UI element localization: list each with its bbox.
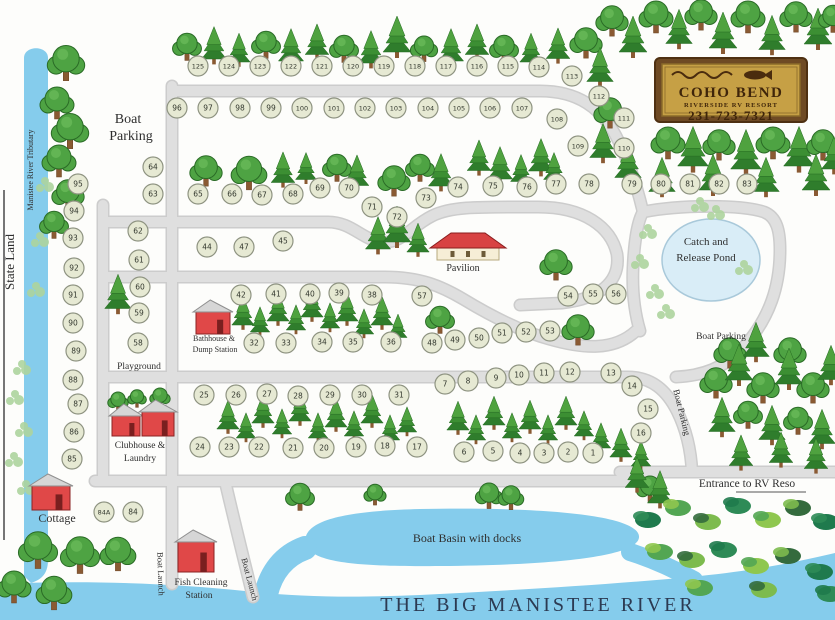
site-marker: 1	[583, 443, 603, 463]
house-wall	[112, 416, 140, 436]
site-marker: 101	[324, 98, 344, 118]
site-marker: 65	[188, 184, 208, 204]
bush-blob	[662, 304, 670, 312]
site-number: 17	[412, 443, 422, 452]
site-number: 83	[742, 180, 752, 189]
canopy-highlight	[740, 4, 750, 14]
canopy-highlight	[433, 309, 442, 318]
site-marker: 104	[418, 98, 438, 118]
site-number: 85	[67, 455, 77, 464]
site-marker: 21	[283, 438, 303, 458]
site-marker: 17	[407, 437, 427, 457]
canopy	[430, 306, 450, 326]
site-marker: 107	[512, 98, 532, 118]
site-marker: 30	[352, 385, 372, 405]
house-wall	[196, 312, 230, 334]
campground-map: 1251241231221211201191181171161151141139…	[0, 0, 835, 620]
site-marker: 48	[422, 333, 442, 353]
canopy-highlight	[259, 34, 268, 43]
site-number: 29	[325, 391, 335, 400]
house-door	[129, 423, 134, 436]
site-number: 121	[316, 63, 328, 71]
site-marker: 31	[389, 385, 409, 405]
site-number: 67	[257, 191, 267, 200]
site-number: 11	[539, 369, 549, 378]
site-number: 55	[588, 290, 598, 299]
site-number: 98	[235, 104, 245, 113]
bush-blob	[18, 360, 26, 368]
site-number: 89	[71, 347, 81, 356]
site-number: 44	[202, 243, 212, 252]
site-number: 65	[193, 190, 203, 199]
site-number: 97	[203, 104, 213, 113]
map-label-boat-parking-nw-1: Boat	[115, 112, 142, 127]
canopy-highlight	[241, 159, 252, 170]
site-number: 63	[148, 190, 158, 199]
canopy-highlight	[826, 8, 835, 16]
bush-blob	[36, 232, 44, 240]
site-number: 3	[542, 449, 547, 458]
site-number: 104	[422, 105, 434, 113]
site-marker: 79	[622, 174, 642, 194]
canopy-highlight	[180, 36, 189, 45]
site-number: 112	[593, 93, 605, 101]
site-number: 16	[636, 429, 646, 438]
canopy-highlight	[198, 159, 208, 169]
bush-top	[741, 557, 757, 567]
site-number: 27	[262, 390, 272, 399]
site-number: 50	[474, 334, 484, 343]
canopy-highlight	[755, 376, 765, 386]
canopy-highlight	[155, 390, 161, 396]
site-marker: 16	[631, 423, 651, 443]
site-marker: 42	[231, 285, 251, 305]
site-marker: 44	[197, 237, 217, 257]
site-number: 115	[502, 63, 514, 71]
canopy-highlight	[418, 38, 426, 46]
site-number: 52	[521, 328, 531, 337]
site-number: 108	[551, 116, 563, 124]
site-number: 92	[69, 264, 79, 273]
site-number: 57	[417, 292, 427, 301]
site-marker: 108	[547, 109, 567, 129]
canopy-highlight	[6, 574, 16, 584]
site-number: 78	[584, 180, 594, 189]
site-number: 120	[347, 63, 359, 71]
house-door	[162, 420, 168, 436]
bush-blob	[646, 291, 654, 299]
bush-top	[811, 513, 827, 523]
canopy-highlight	[110, 540, 121, 551]
site-number: 109	[572, 143, 584, 151]
bush-blob	[5, 459, 13, 467]
site-number: 95	[73, 180, 83, 189]
site-marker: 11	[534, 363, 554, 383]
sign-title: COHO BEND	[679, 85, 784, 101]
map-label-pond-1: Catch and	[684, 236, 729, 248]
site-marker: 103	[386, 98, 406, 118]
site-number: 125	[192, 63, 204, 71]
site-number: 73	[421, 194, 431, 203]
site-number: 99	[266, 104, 276, 113]
site-marker: 23	[219, 437, 239, 457]
canopy	[738, 401, 758, 421]
site-marker: 98	[230, 98, 250, 118]
site-number: 81	[685, 180, 695, 189]
site-marker: 73	[416, 188, 436, 208]
site-marker: 114	[529, 57, 549, 77]
house-door	[56, 494, 63, 510]
site-marker: 109	[568, 136, 588, 156]
site-marker: 87	[68, 394, 88, 414]
site-marker: 47	[234, 237, 254, 257]
site-marker: 14	[622, 376, 642, 396]
map-label-fish-cleaning-2: Station	[186, 591, 213, 601]
site-marker: 55	[583, 284, 603, 304]
site-marker: 100	[292, 98, 312, 118]
site-marker: 111	[614, 108, 634, 128]
canopy-highlight	[57, 49, 68, 60]
site-marker: 83	[737, 174, 757, 194]
bush-blob	[636, 254, 644, 262]
canopy-highlight	[46, 579, 57, 590]
site-marker: 34	[312, 332, 332, 352]
site-marker: 105	[449, 98, 469, 118]
site-number: 96	[172, 104, 182, 113]
canopy-highlight	[61, 117, 72, 128]
site-number: 111	[618, 115, 630, 123]
site-number: 87	[73, 400, 83, 409]
site-marker: 78	[579, 174, 599, 194]
site-marker: 122	[281, 56, 301, 76]
site-marker: 76	[517, 177, 537, 197]
site-marker: 15	[638, 399, 658, 419]
site-marker: 50	[469, 328, 489, 348]
site-number: 13	[606, 369, 616, 378]
site-marker: 80	[651, 174, 671, 194]
canopy-highlight	[370, 486, 377, 493]
bush-top	[645, 543, 661, 553]
site-marker: 49	[445, 330, 465, 350]
site-marker: 74	[448, 177, 468, 197]
site-marker: 88	[63, 370, 83, 390]
site-marker: 58	[128, 333, 148, 353]
map-canvas: 1251241231221211201191181171161151141139…	[0, 0, 835, 620]
site-number: 26	[231, 391, 241, 400]
canopy	[290, 483, 310, 503]
map-label-boat-launch-1: Boat Launch	[155, 552, 167, 597]
site-number: 113	[566, 73, 578, 81]
bush-top	[677, 551, 693, 561]
site-number: 51	[497, 329, 507, 338]
site-marker: 51	[492, 323, 512, 343]
bush-top	[663, 499, 679, 509]
bush-blob	[10, 452, 18, 460]
site-marker: 26	[226, 385, 246, 405]
site-number: 77	[551, 180, 561, 189]
canopy-highlight	[71, 540, 83, 552]
site-number: 30	[357, 391, 367, 400]
site-number: 47	[239, 243, 249, 252]
canopy-highlight	[815, 133, 825, 143]
site-number: 10	[514, 371, 524, 380]
site-number: 72	[392, 213, 402, 222]
site-number: 84	[128, 508, 138, 517]
canopy	[788, 407, 808, 427]
site-number: 40	[305, 290, 315, 299]
site-marker: 13	[601, 363, 621, 383]
site-number: 79	[627, 180, 637, 189]
site-marker: 119	[374, 56, 394, 76]
site-marker: 63	[143, 184, 163, 204]
site-number: 59	[134, 309, 144, 318]
canopy-highlight	[51, 148, 61, 158]
site-marker: 118	[405, 56, 425, 76]
bush-blob	[651, 284, 659, 292]
bush-blob	[639, 231, 647, 239]
bush-blob	[631, 261, 639, 269]
canopy	[53, 46, 79, 72]
site-number: 21	[288, 444, 298, 453]
map-label-boat-parking-e: Boat Parking	[696, 332, 746, 342]
bush-blob	[657, 311, 665, 319]
site-number: 53	[545, 327, 555, 336]
site-marker: 115	[498, 56, 518, 76]
bush-top	[693, 513, 709, 523]
canopy-highlight	[788, 5, 798, 15]
house-wall	[178, 542, 214, 572]
site-number: 101	[328, 105, 340, 113]
site-marker: 102	[355, 98, 375, 118]
site-number: 74	[453, 183, 463, 192]
site-marker: 28	[288, 386, 308, 406]
site-number: 80	[656, 180, 666, 189]
site-number: 75	[488, 182, 498, 191]
bush-blob	[31, 239, 39, 247]
map-label-cottage: Cottage	[38, 511, 75, 525]
map-label-boat-parking-nw-2: Parking	[109, 129, 153, 144]
site-marker: 8	[458, 371, 478, 391]
site-marker: 39	[329, 283, 349, 303]
site-marker: 77	[546, 174, 566, 194]
site-marker: 81	[680, 174, 700, 194]
site-marker: 113	[562, 66, 582, 86]
site-number: 70	[344, 184, 354, 193]
resort-sign: COHO BENDRIVERSIDE RV RESORT231-723-7321	[655, 58, 807, 123]
bush-blob	[41, 177, 49, 185]
site-number: 61	[134, 256, 144, 265]
site-marker: 61	[129, 250, 149, 270]
canopy-highlight	[337, 38, 346, 47]
site-number: 64	[148, 163, 158, 172]
bush-blob	[13, 367, 21, 375]
site-marker: 84A	[94, 502, 114, 522]
site-number: 62	[133, 227, 143, 236]
canopy-highlight	[765, 130, 775, 140]
site-number: 54	[563, 292, 573, 301]
bush-top	[783, 499, 799, 509]
site-number: 91	[68, 291, 78, 300]
fish-icon	[744, 71, 766, 80]
site-number: 100	[296, 105, 308, 113]
site-number: 122	[285, 63, 297, 71]
site-marker: 2	[558, 442, 578, 462]
site-number: 86	[69, 428, 79, 437]
canopy-highlight	[782, 341, 792, 351]
site-number: 42	[236, 291, 246, 300]
bush-blob	[17, 487, 25, 495]
site-number: 66	[227, 190, 237, 199]
bush-blob	[11, 390, 19, 398]
bush-blob	[740, 260, 748, 268]
site-marker: 66	[222, 184, 242, 204]
site-marker: 71	[362, 197, 382, 217]
site-marker: 29	[320, 385, 340, 405]
site-marker: 32	[244, 333, 264, 353]
site-marker: 97	[198, 98, 218, 118]
site-marker: 85	[62, 449, 82, 469]
map-label-pavilion: Pavilion	[446, 263, 479, 274]
site-marker: 10	[509, 365, 529, 385]
bush-blob	[696, 197, 704, 205]
site-marker: 40	[300, 284, 320, 304]
pavilion-post	[466, 251, 470, 257]
site-number: 107	[516, 105, 528, 113]
canopy-highlight	[113, 394, 119, 400]
map-label-fish-cleaning-1: Fish Cleaning	[174, 578, 227, 588]
site-marker: 120	[343, 56, 363, 76]
site-number: 82	[714, 180, 724, 189]
site-number: 31	[394, 391, 404, 400]
map-label-pond-2: Release Pond	[676, 252, 736, 264]
bush-blob	[6, 397, 14, 405]
site-marker: 60	[130, 277, 150, 297]
site-number: 35	[348, 338, 358, 347]
site-number: 20	[319, 444, 329, 453]
canopy-highlight	[29, 535, 41, 547]
site-number: 32	[249, 339, 259, 348]
map-label-bathhouse-2: Dump Station	[193, 345, 238, 354]
canopy-highlight	[483, 485, 491, 493]
site-marker: 7	[435, 374, 455, 394]
site-number: 119	[378, 63, 390, 71]
site-number: 105	[453, 105, 465, 113]
site-marker: 56	[606, 284, 626, 304]
site-number: 68	[288, 190, 298, 199]
site-marker: 82	[709, 174, 729, 194]
site-marker: 116	[467, 56, 487, 76]
site-number: 25	[199, 391, 209, 400]
canopy-highlight	[578, 31, 588, 41]
site-number: 38	[367, 291, 377, 300]
site-marker: 106	[480, 98, 500, 118]
site-marker: 4	[510, 443, 530, 463]
site-marker: 5	[483, 441, 503, 461]
site-marker: 62	[128, 221, 148, 241]
site-number: 90	[68, 319, 78, 328]
site-marker: 25	[194, 385, 214, 405]
bush-blob	[712, 205, 720, 213]
site-number: 8	[466, 377, 471, 386]
site-marker: 75	[483, 176, 503, 196]
site-number: 94	[69, 207, 79, 216]
house-door	[200, 553, 206, 573]
site-number: 114	[533, 64, 545, 72]
bush-top	[815, 585, 831, 595]
canopy-highlight	[497, 38, 506, 47]
map-label-clubhouse-2: Laundry	[124, 454, 156, 464]
site-marker: 124	[219, 56, 239, 76]
site-number: 19	[351, 443, 361, 452]
site-marker: 33	[276, 333, 296, 353]
site-marker: 38	[362, 285, 382, 305]
site-marker: 68	[283, 184, 303, 204]
bush-blob	[15, 429, 23, 437]
map-label-manistee-tributary: Manistee River Tributary	[26, 130, 35, 211]
site-number: 84A	[98, 509, 111, 517]
canopy-highlight	[708, 371, 718, 381]
site-number: 76	[522, 183, 532, 192]
pavilion-post	[482, 251, 486, 257]
site-marker: 45	[273, 231, 293, 251]
site-marker: 36	[381, 332, 401, 352]
site-number: 118	[409, 63, 421, 71]
canopy-highlight	[711, 133, 721, 143]
site-number: 23	[224, 443, 234, 452]
site-number: 7	[443, 380, 448, 389]
site-marker: 3	[534, 443, 554, 463]
canopy-highlight	[330, 157, 339, 166]
site-number: 39	[334, 289, 344, 298]
site-marker: 123	[250, 56, 270, 76]
canopy	[479, 483, 498, 502]
house-wall	[142, 412, 174, 436]
site-marker: 69	[310, 178, 330, 198]
site-marker: 41	[266, 284, 286, 304]
pavilion-post	[451, 251, 455, 257]
site-number: 88	[68, 376, 78, 385]
site-number: 116	[471, 63, 483, 71]
site-marker: 59	[129, 303, 149, 323]
site-number: 45	[278, 237, 288, 246]
site-number: 41	[271, 290, 281, 299]
site-number: 48	[427, 339, 437, 348]
bush-top	[749, 581, 765, 591]
bush-top	[753, 511, 769, 521]
canopy-highlight	[660, 130, 670, 140]
site-marker: 121	[312, 56, 332, 76]
site-number: 123	[254, 63, 266, 71]
site-number: 124	[223, 63, 235, 71]
site-number: 18	[380, 442, 390, 451]
bush-blob	[644, 224, 652, 232]
bush-top	[773, 547, 789, 557]
canopy-highlight	[386, 169, 396, 179]
site-number: 58	[133, 339, 143, 348]
canopy-highlight	[293, 486, 302, 495]
bush-blob	[20, 422, 28, 430]
site-number: 12	[565, 368, 575, 377]
canopy	[236, 156, 261, 181]
site-number: 56	[611, 290, 621, 299]
site-marker: 112	[589, 86, 609, 106]
site-marker: 91	[63, 285, 83, 305]
site-number: 71	[367, 203, 377, 212]
map-label-bathhouse-1: Bathhouse &	[193, 334, 236, 343]
site-number: 69	[315, 184, 325, 193]
canopy-highlight	[741, 404, 750, 413]
site-marker: 9	[486, 368, 506, 388]
